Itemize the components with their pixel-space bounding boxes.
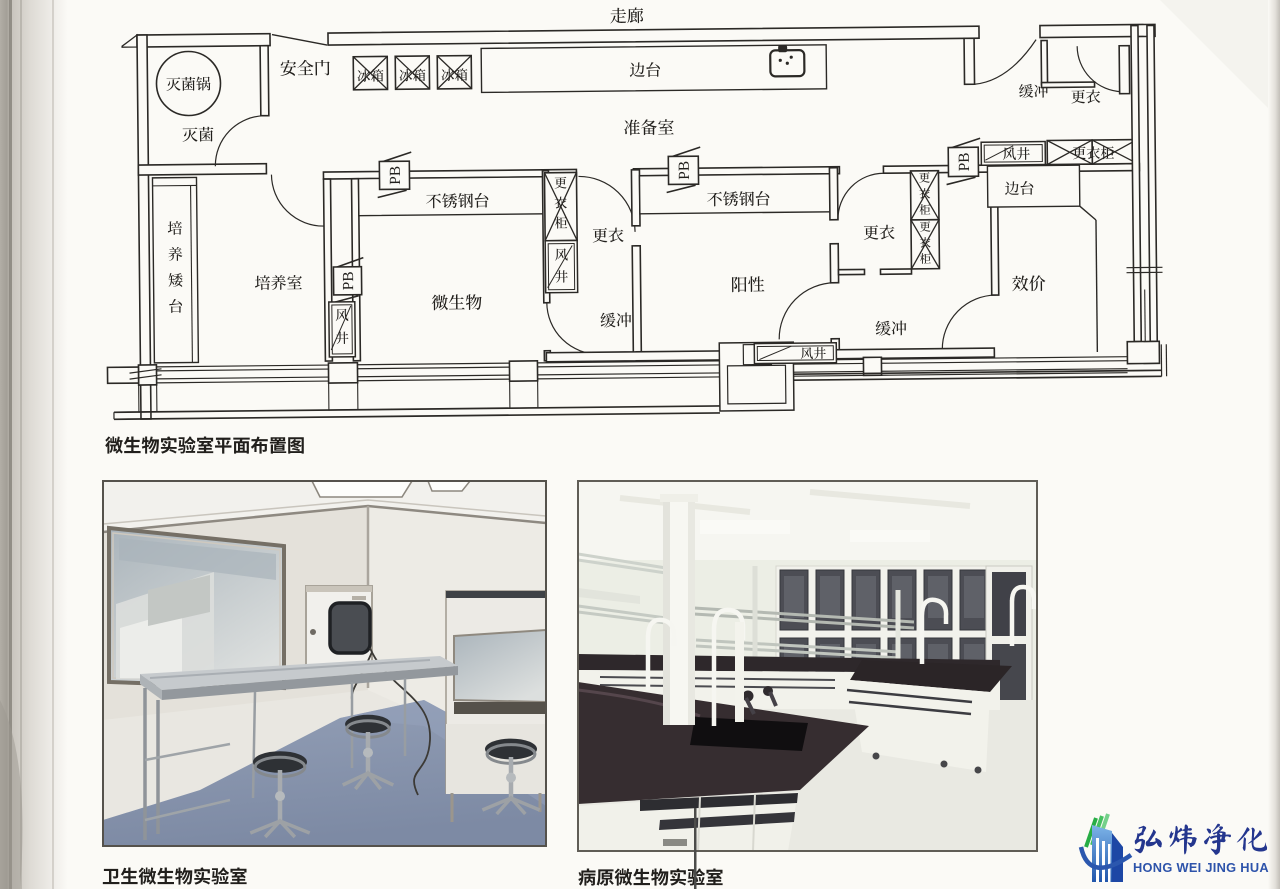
svg-text:风井: 风井 bbox=[800, 343, 826, 362]
svg-text:微生物: 微生物 bbox=[431, 288, 482, 314]
svg-text:柜: 柜 bbox=[920, 251, 932, 267]
svg-text:培: 培 bbox=[167, 218, 182, 239]
svg-text:风: 风 bbox=[554, 244, 568, 264]
svg-text:矮: 矮 bbox=[168, 270, 183, 291]
svg-text:阳性: 阳性 bbox=[730, 270, 764, 295]
svg-text:安全门: 安全门 bbox=[280, 54, 331, 80]
svg-text:走廊: 走廊 bbox=[610, 2, 644, 27]
svg-text:更衣: 更衣 bbox=[1071, 86, 1101, 107]
svg-text:效价: 效价 bbox=[1011, 270, 1045, 295]
svg-text:衣: 衣 bbox=[919, 186, 931, 202]
svg-text:井: 井 bbox=[335, 327, 349, 347]
svg-text:PB: PB bbox=[676, 161, 693, 180]
svg-text:弘炜净化: 弘炜净化 bbox=[1132, 822, 1270, 856]
svg-text:风: 风 bbox=[335, 304, 349, 324]
svg-text:边台: 边台 bbox=[1005, 178, 1035, 199]
svg-text:微生物实验室平面布置图: 微生物实验室平面布置图 bbox=[105, 432, 305, 458]
svg-text:不锈钢台: 不锈钢台 bbox=[707, 186, 771, 210]
svg-text:缓冲: 缓冲 bbox=[600, 308, 632, 331]
svg-text:边台: 边台 bbox=[629, 58, 661, 81]
svg-text:衣: 衣 bbox=[554, 193, 567, 212]
svg-text:更衣: 更衣 bbox=[592, 223, 624, 246]
svg-text:PB: PB bbox=[340, 271, 357, 290]
svg-text:灭菌锅: 灭菌锅 bbox=[166, 73, 211, 94]
svg-text:不锈钢台: 不锈钢台 bbox=[426, 188, 490, 212]
svg-text:更衣: 更衣 bbox=[863, 220, 895, 243]
svg-text:冰箱: 冰箱 bbox=[441, 64, 468, 84]
svg-text:冰箱: 冰箱 bbox=[357, 64, 384, 84]
svg-text:灭菌: 灭菌 bbox=[182, 122, 214, 145]
svg-text:卫生微生物实验室: 卫生微生物实验室 bbox=[102, 863, 248, 889]
svg-text:柜: 柜 bbox=[554, 213, 567, 232]
svg-text:冰箱: 冰箱 bbox=[399, 64, 426, 84]
svg-text:准备室: 准备室 bbox=[623, 113, 674, 139]
svg-text:PB: PB bbox=[387, 166, 404, 185]
svg-text:病原微生物实验室: 病原微生物实验室 bbox=[578, 864, 724, 889]
svg-text:PB: PB bbox=[956, 152, 973, 171]
svg-text:柜: 柜 bbox=[919, 202, 931, 218]
svg-text:培养室: 培养室 bbox=[254, 270, 302, 294]
svg-text:更: 更 bbox=[919, 219, 931, 235]
svg-text:更衣柜: 更衣柜 bbox=[1072, 143, 1114, 163]
svg-text:衣: 衣 bbox=[919, 235, 931, 251]
svg-text:缓冲: 缓冲 bbox=[875, 316, 907, 339]
svg-text:更: 更 bbox=[554, 173, 567, 192]
svg-text:台: 台 bbox=[168, 296, 183, 317]
svg-text:井: 井 bbox=[555, 266, 569, 286]
svg-text:养: 养 bbox=[168, 244, 183, 265]
svg-text:风井: 风井 bbox=[1002, 144, 1030, 164]
svg-text:更: 更 bbox=[919, 170, 931, 186]
svg-text:HONG WEI JING HUA: HONG WEI JING HUA bbox=[1133, 860, 1269, 875]
